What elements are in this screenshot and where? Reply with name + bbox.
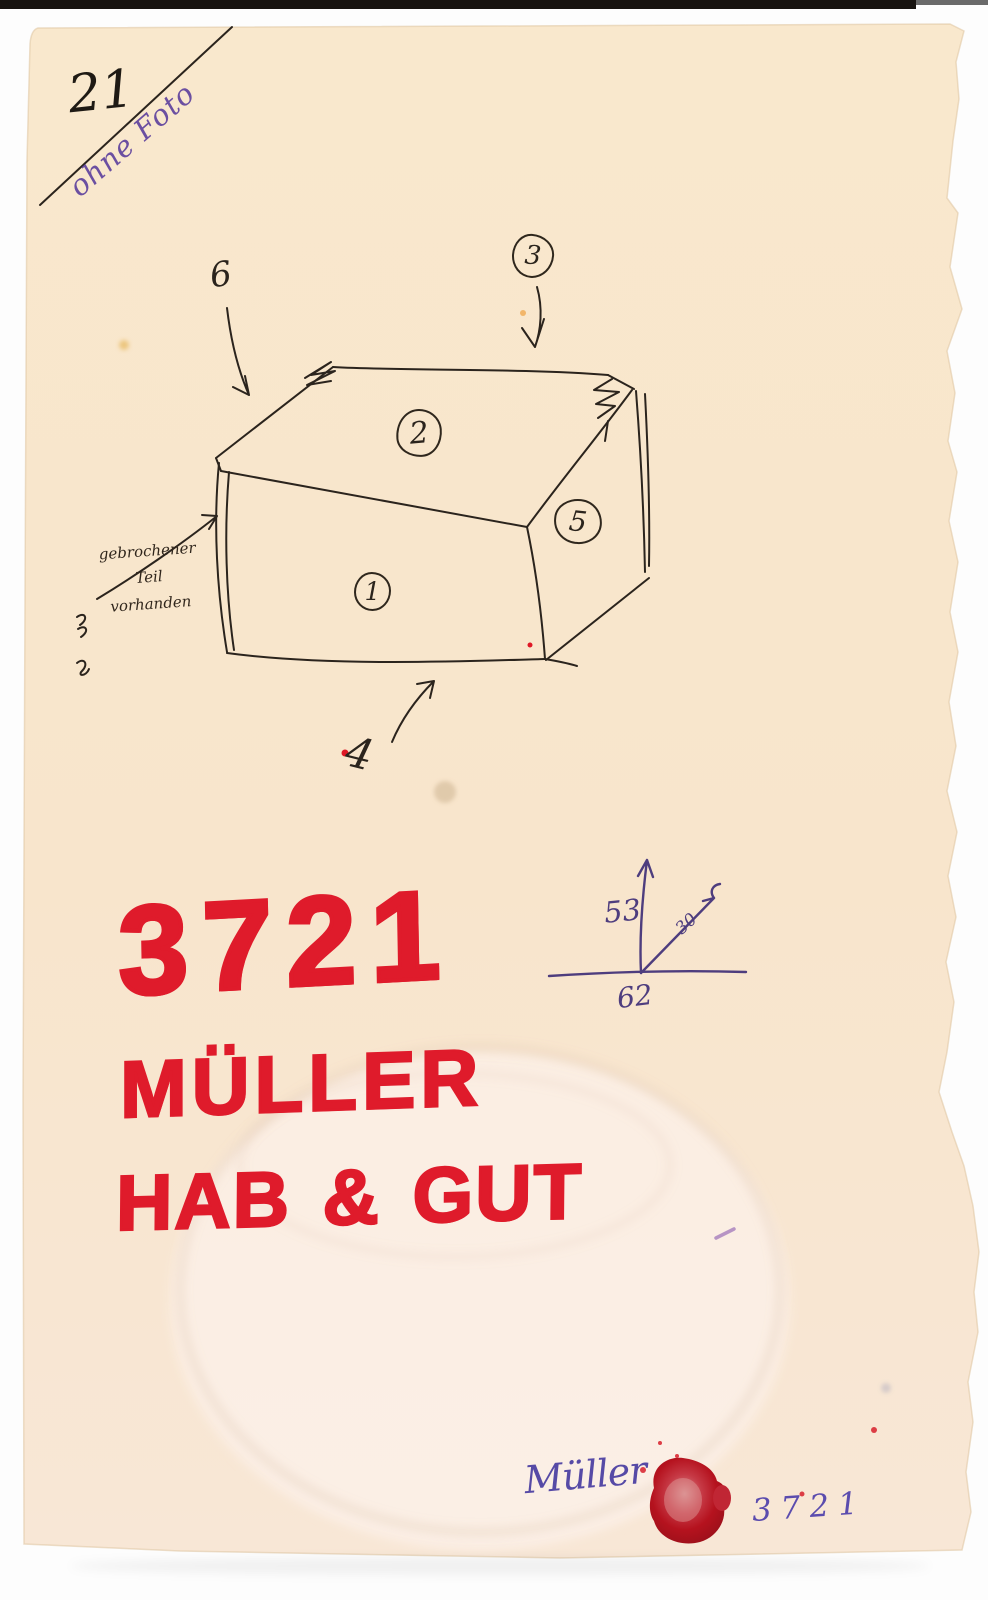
owner-name-large: MÜLLER bbox=[120, 1038, 483, 1131]
sketch-circled-label-1: 1 bbox=[354, 572, 391, 611]
signature: Müller bbox=[523, 1451, 648, 1500]
scan-artwork-layer bbox=[0, 0, 988, 1600]
sketch-label-6: 6 bbox=[208, 257, 234, 294]
label-2-text: 2 bbox=[408, 415, 430, 452]
dimension-vertical: 53 bbox=[603, 895, 643, 928]
inventory-number-small: 3721 bbox=[751, 1488, 868, 1527]
card-number: 21 bbox=[65, 63, 136, 122]
scanned-card: 21 ohne Foto 6 3 2 1 5 4 gebrochener Tei… bbox=[0, 0, 988, 1600]
dimension-horizontal: 62 bbox=[615, 981, 654, 1013]
label-5-text: 5 bbox=[567, 504, 588, 539]
scanner-edge-bar bbox=[0, 0, 988, 9]
label-1-text: 1 bbox=[365, 577, 381, 606]
inventory-number-large: 3721 bbox=[117, 871, 455, 1015]
label-3-text: 3 bbox=[524, 240, 543, 271]
estate-label-large: HAB & GUT bbox=[116, 1152, 584, 1242]
broken-part-note: gebrochener Teil vorhanden bbox=[81, 534, 216, 622]
